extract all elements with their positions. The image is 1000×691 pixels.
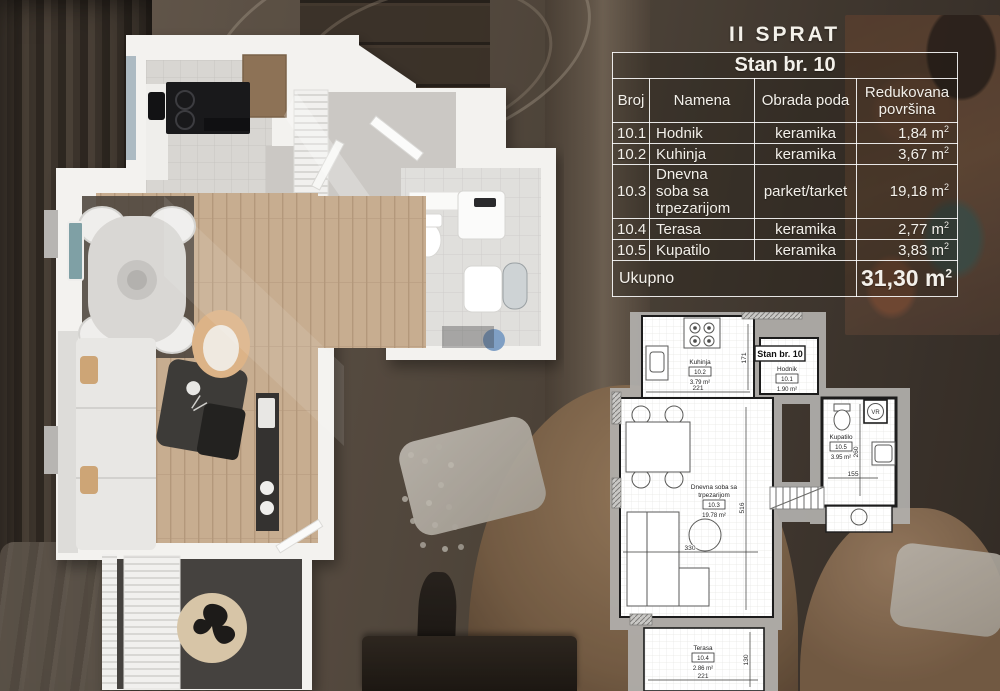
info-panel: II SPRAT Stan br. 10 Broj Namena Obrada … bbox=[612, 18, 957, 297]
label-terasa: Terasa 10.4 2.86 m² bbox=[692, 645, 714, 672]
floorplan-3d bbox=[44, 26, 564, 691]
table-row: 10.3 Dnevna soba sa trpezarijom parket/t… bbox=[613, 165, 958, 219]
table-row: 10.4 Terasa keramika 2,77 m2 bbox=[613, 219, 958, 240]
svg-text:10.2: 10.2 bbox=[694, 370, 706, 376]
col-header-obrada: Obrada poda bbox=[755, 79, 857, 123]
total-label: Ukupno bbox=[613, 261, 857, 297]
plan2d-title: Stan br. 10 bbox=[755, 346, 805, 361]
stove-icon bbox=[684, 318, 720, 348]
svg-text:330: 330 bbox=[684, 545, 695, 552]
svg-text:130: 130 bbox=[743, 654, 750, 665]
floorplan-2d: VR Stan br. 10 Kuhinja 10.2 3.79 m² Hodn… bbox=[610, 312, 910, 691]
washing-machine-icon bbox=[872, 442, 895, 465]
coffee-table bbox=[155, 358, 253, 461]
table-total-row: Ukupno 31,30 m2 bbox=[613, 261, 958, 297]
svg-text:260: 260 bbox=[853, 446, 860, 457]
floor-title: II SPRAT bbox=[612, 18, 957, 52]
bath-sink bbox=[464, 266, 502, 312]
wall-art bbox=[68, 222, 83, 280]
svg-text:221: 221 bbox=[697, 673, 708, 680]
svg-text:1.90 m²: 1.90 m² bbox=[777, 387, 797, 393]
total-value: 31,30 m2 bbox=[857, 261, 958, 297]
room-neighbor bbox=[826, 506, 892, 532]
svg-text:10.5: 10.5 bbox=[835, 445, 847, 451]
svg-text:10.4: 10.4 bbox=[697, 656, 709, 662]
svg-text:Kupatilo: Kupatilo bbox=[829, 434, 853, 441]
svg-text:171: 171 bbox=[741, 352, 748, 363]
svg-text:Stan br. 10: Stan br. 10 bbox=[757, 349, 803, 359]
living-room-3d bbox=[58, 193, 426, 553]
stairs-icon bbox=[770, 487, 824, 509]
col-header-povrsina: Redukovanapovršina bbox=[857, 79, 958, 123]
label-hodnik: Hodnik 10.1 1.90 m² bbox=[776, 366, 798, 393]
area-table: Stan br. 10 Broj Namena Obrada poda Redu… bbox=[612, 52, 958, 297]
kitchen-3d bbox=[126, 55, 286, 198]
terrace-lounger bbox=[124, 556, 180, 689]
svg-text:221: 221 bbox=[692, 385, 703, 392]
apartment-title: Stan br. 10 bbox=[613, 53, 958, 79]
svg-text:3.95 m²: 3.95 m² bbox=[831, 455, 851, 461]
col-header-namena: Namena bbox=[650, 79, 755, 123]
svg-text:10.3: 10.3 bbox=[708, 503, 720, 509]
svg-text:Dnevna soba sa: Dnevna soba sa bbox=[691, 484, 738, 491]
tv-unit bbox=[256, 393, 279, 531]
svg-text:Kuhinja: Kuhinja bbox=[689, 359, 711, 366]
terrace-table bbox=[177, 593, 247, 663]
flyer-root: II SPRAT Stan br. 10 Broj Namena Obrada … bbox=[0, 0, 1000, 691]
kitchen-sink bbox=[148, 92, 165, 120]
label-kupatilo: Kupatilo 10.5 3.95 m² bbox=[829, 434, 853, 461]
sofa bbox=[58, 331, 156, 553]
kitchen-sink-icon bbox=[646, 346, 668, 380]
mirror bbox=[503, 263, 527, 309]
svg-text:trpezarijom: trpezarijom bbox=[698, 492, 730, 499]
table-row: 10.1 Hodnik keramika 1,84 m2 bbox=[613, 123, 958, 144]
vr-shaft: VR bbox=[864, 400, 887, 423]
label-kuhinja: Kuhinja 10.2 3.79 m² bbox=[689, 359, 711, 386]
svg-text:Terasa: Terasa bbox=[693, 645, 713, 652]
svg-text:Hodnik: Hodnik bbox=[777, 366, 798, 373]
svg-text:10.1: 10.1 bbox=[781, 377, 793, 383]
toilet-icon bbox=[834, 404, 850, 430]
terrace-3d bbox=[102, 554, 302, 689]
svg-text:155: 155 bbox=[847, 471, 858, 478]
svg-text:516: 516 bbox=[739, 502, 746, 513]
svg-text:19.78 m²: 19.78 m² bbox=[702, 513, 726, 519]
window-sills bbox=[44, 210, 58, 474]
col-header-broj: Broj bbox=[613, 79, 650, 123]
svg-text:2.86 m²: 2.86 m² bbox=[693, 666, 713, 672]
svg-text:VR: VR bbox=[871, 410, 880, 416]
table-row: 10.5 Kupatilo keramika 3,83 m2 bbox=[613, 240, 958, 261]
table-row: 10.2 Kuhinja keramika 3,67 m2 bbox=[613, 144, 958, 165]
